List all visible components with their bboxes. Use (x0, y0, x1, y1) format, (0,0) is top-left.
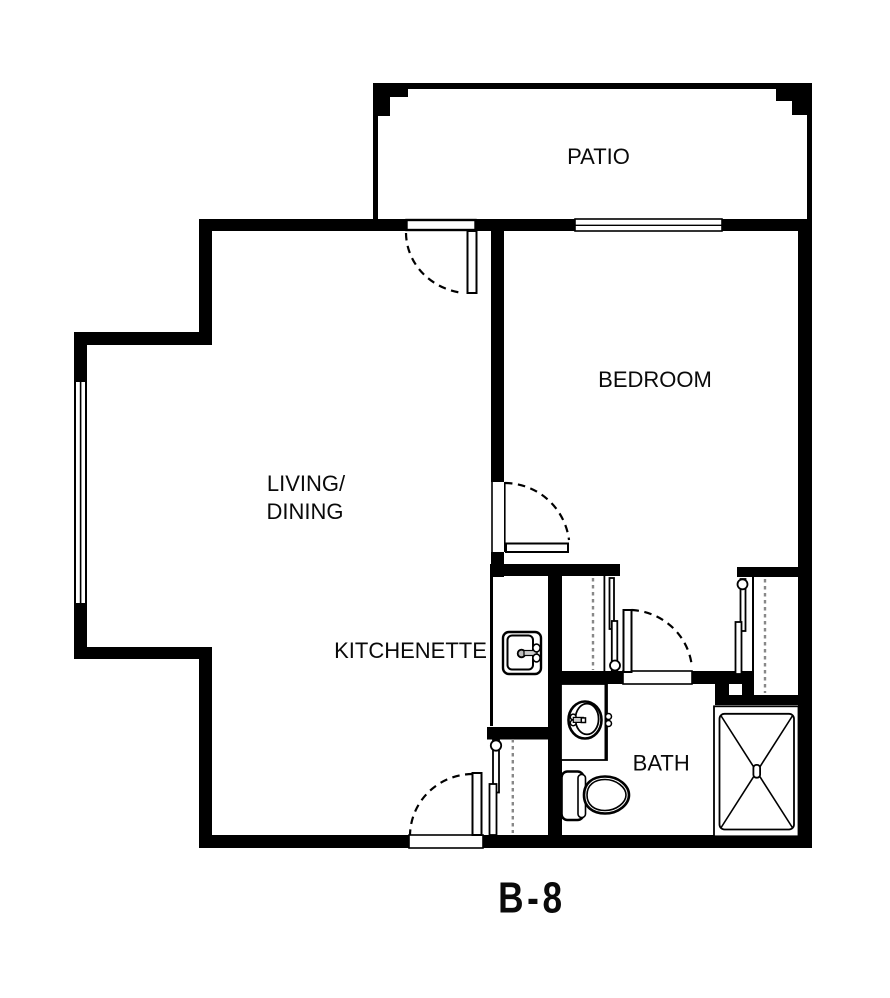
svg-text:PATIO: PATIO (567, 144, 630, 169)
svg-text:B-8: B-8 (498, 874, 566, 923)
svg-text:BEDROOM: BEDROOM (598, 367, 712, 392)
svg-text:BATH: BATH (633, 751, 690, 776)
svg-text:KITCHENETTE: KITCHENETTE (334, 638, 487, 663)
svg-text:DINING: DINING (267, 499, 344, 524)
svg-text:LIVING/: LIVING/ (267, 471, 346, 496)
